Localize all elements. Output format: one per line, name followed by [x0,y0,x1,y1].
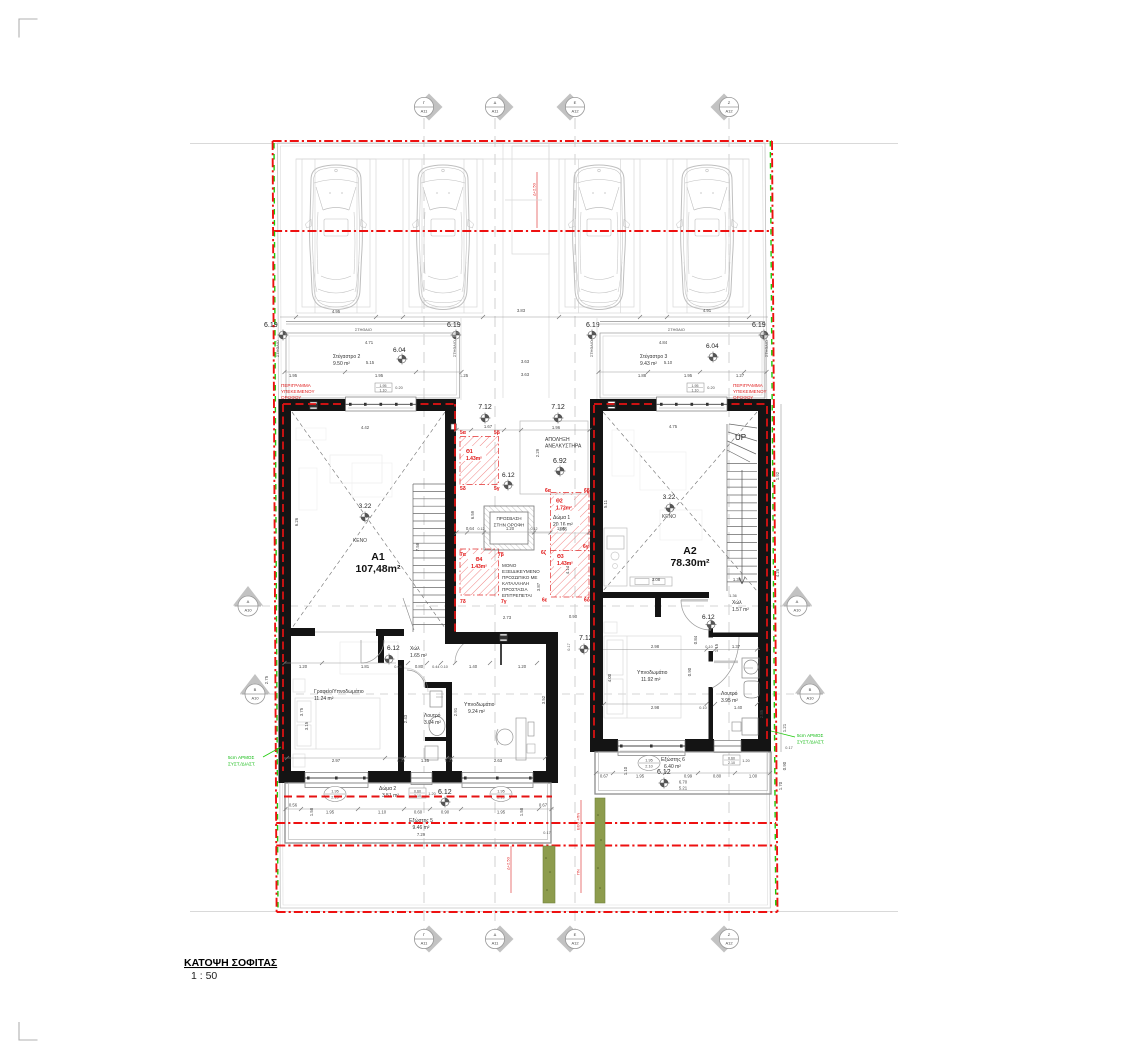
svg-text:6.12: 6.12 [502,472,515,479]
svg-text:Θ1: Θ1 [466,449,473,455]
svg-text:Δ+2.50: Δ+2.50 [532,182,537,196]
svg-text:4.14: 4.14 [565,565,570,574]
svg-text:1.10: 1.10 [623,766,628,775]
svg-text:9.50 m²: 9.50 m² [333,361,350,367]
svg-text:1.10: 1.10 [378,810,387,815]
svg-text:ΣΥΣΤ./ΔΙΑΣΤ.: ΣΥΣΤ./ΔΙΑΣΤ. [228,762,255,767]
svg-text:0.06: 0.06 [394,665,401,669]
svg-text:Δώμα 2: Δώμα 2 [379,785,396,792]
svg-text:4.91: 4.91 [703,308,712,313]
svg-text:6.19: 6.19 [447,322,461,329]
svg-text:5cm ΑΡΜΟΣ: 5cm ΑΡΜΟΣ [797,733,823,738]
svg-text:1.20: 1.20 [428,792,435,796]
svg-text:1.95: 1.95 [331,790,338,794]
svg-text:ΣΤΗΘΑΙΟ: ΣΤΗΘΑΙΟ [276,340,280,357]
svg-text:ΠΡΟΣΩΠΙΚΟ ΜΕ: ΠΡΟΣΩΠΙΚΟ ΜΕ [502,575,538,580]
svg-text:3.87: 3.87 [536,582,541,591]
svg-text:1.95: 1.95 [289,373,298,378]
svg-text:1 : 50: 1 : 50 [191,970,217,982]
svg-text:Δ: Δ [494,932,497,937]
svg-text:Στέγαστρο 2: Στέγαστρο 2 [333,353,361,360]
svg-text:1.21: 1.21 [782,723,787,732]
svg-text:2.91: 2.91 [453,707,458,716]
svg-text:ΕΠΙΤΡΕΠΕΤΑΙ: ΕΠΙΤΡΕΠΕΤΑΙ [502,593,532,598]
svg-text:A10: A10 [806,696,814,701]
svg-text:6.19: 6.19 [586,322,600,329]
svg-text:Δώμα 1: Δώμα 1 [553,514,570,521]
svg-text:2.97: 2.97 [332,758,341,763]
svg-text:7β: 7β [498,552,504,558]
svg-text:1.88: 1.88 [638,373,647,378]
svg-text:0.17: 0.17 [567,643,571,650]
svg-text:A2: A2 [683,545,697,557]
svg-text:6.12: 6.12 [438,789,452,796]
svg-text:6.12: 6.12 [387,645,400,652]
svg-text:11.92 m²: 11.92 m² [641,677,661,683]
svg-text:A11: A11 [421,941,429,946]
svg-text:6γ: 6γ [583,544,589,550]
svg-text:0.80: 0.80 [713,774,722,779]
svg-text:6.92: 6.92 [553,458,567,465]
svg-text:7γ: 7γ [501,599,507,605]
svg-text:6.04: 6.04 [393,347,406,354]
svg-text:0.20: 0.20 [395,386,402,390]
svg-text:ΜΟΝΟ: ΜΟΝΟ [502,563,517,568]
svg-text:6β: 6β [584,488,590,494]
svg-text:5.21: 5.21 [679,786,688,791]
svg-text:5β: 5β [494,430,500,436]
svg-text:2.63: 2.63 [494,758,503,763]
svg-text:6.19: 6.19 [752,322,766,329]
svg-text:Β: Β [254,687,257,692]
svg-text:Δ: Δ [494,100,497,105]
svg-text:0.99: 0.99 [684,774,693,779]
svg-text:1.43m²: 1.43m² [471,564,487,570]
svg-text:7.58: 7.58 [415,542,420,551]
svg-text:1.96: 1.96 [552,425,561,430]
svg-text:ΠΝ: ΠΝ [576,869,581,875]
svg-text:ΚΑΤΑΛΛΗΛΗ: ΚΑΤΑΛΛΗΛΗ [502,581,529,586]
svg-text:A11: A11 [421,109,429,114]
svg-text:Λουτρό: Λουτρό [424,712,441,719]
svg-text:6.04: 6.04 [706,343,719,350]
svg-text:1.10: 1.10 [692,388,699,392]
svg-text:0.90: 0.90 [687,667,692,676]
svg-text:9.46 m²: 9.46 m² [413,825,430,831]
svg-text:1.95: 1.95 [326,810,335,815]
svg-text:2.10: 2.10 [728,761,735,765]
svg-text:5α: 5α [460,430,467,436]
svg-text:2.29: 2.29 [535,448,540,457]
svg-text:4.26: 4.26 [775,568,780,577]
svg-text:0.60: 0.60 [414,810,423,815]
svg-text:1.10: 1.10 [380,388,387,392]
svg-text:4.42: 4.42 [361,425,370,430]
svg-text:1.95: 1.95 [636,774,645,779]
svg-text:0.12: 0.12 [531,527,538,531]
svg-text:0.44 0.10: 0.44 0.10 [432,665,448,669]
svg-text:78.30m²: 78.30m² [670,557,710,569]
svg-text:ΣΥΣΤ./ΔΙΑΣΤ.: ΣΥΣΤ./ΔΙΑΣΤ. [797,740,824,745]
svg-text:0.90: 0.90 [569,614,578,619]
svg-text:ΣΤΗΘΑΙΟ: ΣΤΗΘΑΙΟ [668,328,685,332]
svg-text:ΠΕΡΙΓΡΑΜΜΑ: ΠΕΡΙΓΡΑΜΜΑ [281,383,312,388]
svg-text:3.63: 3.63 [521,359,530,364]
svg-text:1.72m²: 1.72m² [556,506,572,512]
svg-text:1.20: 1.20 [518,664,527,669]
svg-text:0.20: 0.20 [707,386,714,390]
svg-text:0.67: 0.67 [600,774,609,779]
svg-text:2.85: 2.85 [759,709,764,718]
svg-text:Α: Α [796,599,799,604]
svg-text:6δ: 6δ [584,598,590,604]
svg-text:7.29: 7.29 [417,832,426,837]
svg-text:2.98: 2.98 [651,705,660,710]
svg-text:ΠΡΟΣΒΑΣΗ: ΠΡΟΣΒΑΣΗ [496,516,521,521]
svg-text:0.64: 0.64 [466,526,475,531]
svg-text:Θ4: Θ4 [476,557,483,563]
svg-text:Θ2: Θ2 [556,499,563,505]
svg-text:1.65 m²: 1.65 m² [410,653,427,659]
svg-text:1.20: 1.20 [299,664,308,669]
svg-text:0.10: 0.10 [397,759,404,763]
svg-text:ΣΤΗΘΑΙΟ: ΣΤΗΘΑΙΟ [590,340,594,357]
svg-text:5γ: 5γ [494,486,500,492]
svg-text:1.40: 1.40 [469,664,478,669]
svg-text:1.36: 1.36 [733,577,742,582]
svg-text:5.10: 5.10 [664,360,673,365]
svg-text:ΑΠΟΛΗΞΗ: ΑΠΟΛΗΞΗ [545,437,570,443]
svg-text:3.08: 3.08 [652,577,661,582]
svg-text:Γραφείο/Υπνοδωμάτιο: Γραφείο/Υπνοδωμάτιο [314,688,364,695]
svg-text:Β: Β [809,687,812,692]
svg-text:A11: A11 [492,109,500,114]
svg-text:3.22: 3.22 [663,494,676,501]
svg-text:6ε: 6ε [542,598,548,604]
svg-text:1.67: 1.67 [484,424,493,429]
svg-text:2.98: 2.98 [651,644,660,649]
svg-text:7α: 7α [460,552,467,558]
svg-text:1.36: 1.36 [729,594,736,598]
svg-text:1.37: 1.37 [732,644,741,649]
svg-text:7.12: 7.12 [478,404,492,411]
svg-text:4.75: 4.75 [669,424,678,429]
svg-text:0.10: 0.10 [699,706,706,710]
svg-text:6.12: 6.12 [657,769,671,776]
svg-text:1.27: 1.27 [736,373,745,378]
svg-text:2.10: 2.10 [645,765,652,769]
svg-text:Στέγαστρο 3: Στέγαστρο 3 [640,353,668,360]
svg-text:6.12: 6.12 [702,614,715,621]
svg-text:2.73: 2.73 [503,615,512,620]
svg-text:A1: A1 [371,551,385,563]
svg-text:3.22: 3.22 [359,503,372,510]
svg-text:6.59: 6.59 [470,510,475,519]
svg-text:0.17: 0.17 [785,746,792,750]
svg-text:7.12: 7.12 [551,404,565,411]
svg-text:1.40: 1.40 [734,705,743,710]
svg-text:6α: 6α [545,488,552,494]
svg-text:1.20: 1.20 [742,759,749,763]
svg-text:9.24 m²: 9.24 m² [468,709,485,715]
svg-text:0.56: 0.56 [289,803,298,808]
svg-text:1.25: 1.25 [421,758,430,763]
svg-text:A12: A12 [571,941,579,946]
svg-text:4.84: 4.84 [659,340,668,345]
svg-text:Υπνοδωμάτιο: Υπνοδωμάτιο [464,701,495,708]
svg-text:4.71: 4.71 [365,340,374,345]
svg-text:1.58: 1.58 [519,807,524,816]
svg-text:Λουτρό: Λουτρό [721,690,738,697]
svg-text:ΣΤΗΘΑΙΟ: ΣΤΗΘΑΙΟ [355,328,372,332]
svg-text:1.57 m²: 1.57 m² [732,607,749,613]
svg-text:0.90: 0.90 [782,761,787,770]
svg-text:5cm ΑΡΜΟΣ: 5cm ΑΡΜΟΣ [228,755,254,760]
svg-text:Χώλ: Χώλ [732,599,742,606]
svg-text:5δ: 5δ [460,486,466,492]
svg-text:5.15: 5.15 [366,360,375,365]
svg-text:Ε: Ε [574,932,577,937]
svg-text:ΣΤΗΘΑΙΟ: ΣΤΗΘΑΙΟ [453,340,457,357]
svg-text:4.95: 4.95 [332,309,341,314]
svg-text:1.70: 1.70 [778,781,783,790]
svg-text:A12: A12 [725,941,733,946]
svg-text:1.58: 1.58 [309,807,314,816]
svg-text:ΠΡΟΣΤΑΣΙΑ: ΠΡΟΣΤΑΣΙΑ [502,587,528,592]
svg-text:6.26: 6.26 [294,517,299,526]
svg-text:Ε: Ε [574,100,577,105]
svg-text:ΚΑΤΟΨΗ ΣΟΦΙΤΑΣ: ΚΑΤΟΨΗ ΣΟΦΙΤΑΣ [184,957,277,969]
svg-text:Εξώστης 6: Εξώστης 6 [661,756,685,763]
svg-text:Δ+2.50: Δ+2.50 [506,856,511,870]
svg-text:0.12: 0.12 [478,527,485,531]
svg-text:ΚΕΝΟ: ΚΕΝΟ [353,538,367,544]
svg-text:11.24 m²: 11.24 m² [314,696,334,702]
svg-text:3.52: 3.52 [541,695,546,704]
svg-text:1.43m²: 1.43m² [466,456,482,462]
svg-text:2.43: 2.43 [403,714,408,723]
svg-text:ΠΕΡΙΓΡΑΜΜΑ: ΠΕΡΙΓΡΑΜΜΑ [733,383,764,388]
svg-text:Χώλ: Χώλ [410,645,420,652]
svg-text:1.95: 1.95 [684,373,693,378]
svg-text:ΥΠΕΚΕΙΜΕΝΟΥ: ΥΠΕΚΕΙΜΕΝΟΥ [733,389,767,394]
svg-text:1.00: 1.00 [749,774,758,779]
svg-text:7δ: 7δ [460,599,466,605]
svg-text:0.67: 0.67 [539,803,548,808]
svg-text:9.43 m²: 9.43 m² [640,361,657,367]
svg-text:3.15: 3.15 [304,721,309,730]
svg-text:A10: A10 [244,608,252,613]
svg-text:A10: A10 [793,608,801,613]
svg-text:107,48m²: 107,48m² [356,563,401,575]
svg-text:ΚΕΝΟ: ΚΕΝΟ [662,514,676,520]
svg-text:3.04 m²: 3.04 m² [424,720,441,726]
svg-text:3.63: 3.63 [521,372,530,377]
svg-text:1.95: 1.95 [497,790,504,794]
svg-text:Θ3: Θ3 [557,554,564,560]
svg-text:0.80: 0.80 [415,664,424,669]
svg-text:UP: UP [735,433,746,442]
svg-text:A12: A12 [571,109,579,114]
svg-text:1.92: 1.92 [775,471,780,480]
svg-text:0.84: 0.84 [693,635,698,644]
svg-text:ΕΘ3 +ΠΝ: ΕΘ3 +ΠΝ [576,813,581,830]
svg-text:1.20: 1.20 [506,526,515,531]
svg-text:1.81: 1.81 [361,664,370,669]
svg-text:Υπνοδωμάτιο: Υπνοδωμάτιο [637,669,668,676]
svg-text:Α: Α [247,599,250,604]
svg-text:ΥΠΕΚΕΙΜΕΝΟΥ: ΥΠΕΚΕΙΜΕΝΟΥ [281,389,315,394]
svg-text:ΕΞΕΙΔΙΚΕΥΜΕΝΟ: ΕΞΕΙΔΙΚΕΥΜΕΝΟ [502,569,540,574]
svg-text:A11: A11 [492,941,500,946]
svg-text:1.55: 1.55 [557,526,566,531]
svg-text:3.75: 3.75 [299,707,304,716]
svg-text:3.83: 3.83 [517,308,526,313]
svg-text:5.11: 5.11 [603,499,608,508]
svg-text:3.95 m²: 3.95 m² [721,698,738,704]
svg-text:1.95: 1.95 [497,810,506,815]
svg-text:6.19: 6.19 [264,322,278,329]
svg-text:0.90: 0.90 [441,810,450,815]
svg-text:A10: A10 [251,696,259,701]
svg-text:A12: A12 [725,109,733,114]
svg-text:0.10: 0.10 [705,645,712,649]
svg-text:1.95: 1.95 [645,759,652,763]
svg-text:0.17: 0.17 [543,831,550,835]
svg-text:2.75: 2.75 [264,675,269,684]
svg-text:6.70: 6.70 [679,780,688,785]
svg-text:6ζ: 6ζ [541,550,547,556]
svg-text:1.95: 1.95 [375,373,384,378]
svg-text:ΑΝΕΛΚΥΣΤΗΡΑ: ΑΝΕΛΚΥΣΤΗΡΑ [545,444,582,450]
svg-text:0.10: 0.10 [445,759,452,763]
svg-text:ΣΤΗΘΑΙΟ: ΣΤΗΘΑΙΟ [765,340,769,357]
svg-text:4.00: 4.00 [607,673,612,682]
